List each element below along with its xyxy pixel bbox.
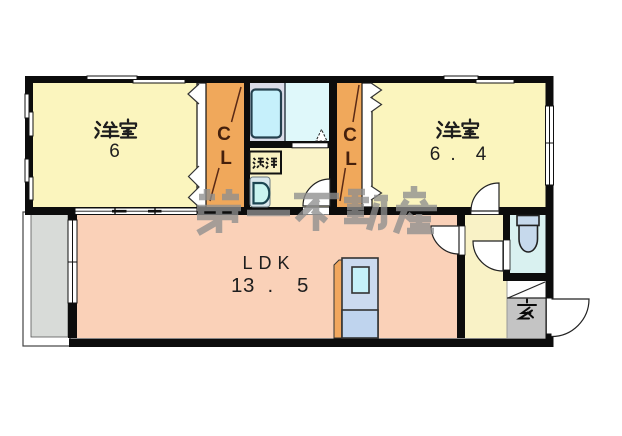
svg-text:C: C <box>217 124 231 145</box>
svg-text:.: . <box>268 274 274 297</box>
svg-text:C: C <box>343 125 357 146</box>
svg-text:LDK: LDK <box>242 253 295 273</box>
svg-text:3: 3 <box>243 274 254 297</box>
svg-text:L: L <box>220 148 232 169</box>
svg-text:6: 6 <box>109 141 120 162</box>
svg-text:5: 5 <box>297 274 308 297</box>
svg-text:.: . <box>450 144 455 165</box>
svg-text:L: L <box>345 149 357 170</box>
svg-text:1: 1 <box>231 274 242 297</box>
svg-text:6: 6 <box>430 144 441 165</box>
svg-text:4: 4 <box>476 144 487 165</box>
